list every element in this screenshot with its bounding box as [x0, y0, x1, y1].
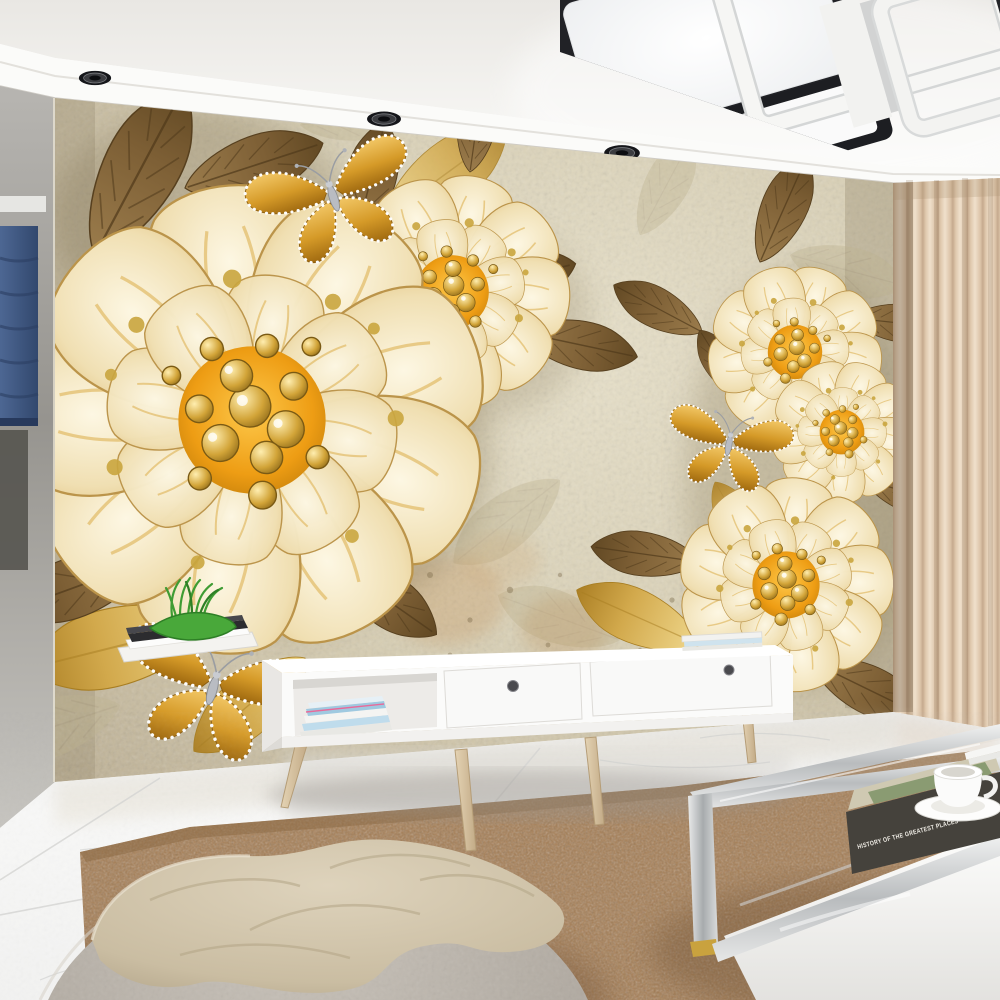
drawer-knob[interactable] — [724, 665, 734, 675]
drawer-left[interactable] — [444, 663, 582, 728]
window-frame — [0, 196, 46, 212]
spotlight-icon — [367, 112, 401, 127]
scene-canvas: HISTORY OF THE GREATEST PLACES RICHARD H… — [0, 0, 1000, 1000]
left-side-wall — [0, 86, 55, 828]
curtain — [893, 178, 1000, 730]
drawer-knob[interactable] — [508, 681, 519, 692]
wall-shadow — [0, 430, 28, 570]
living-room-photo: HISTORY OF THE GREATEST PLACES RICHARD H… — [0, 0, 1000, 1000]
spotlight-icon — [79, 71, 111, 85]
